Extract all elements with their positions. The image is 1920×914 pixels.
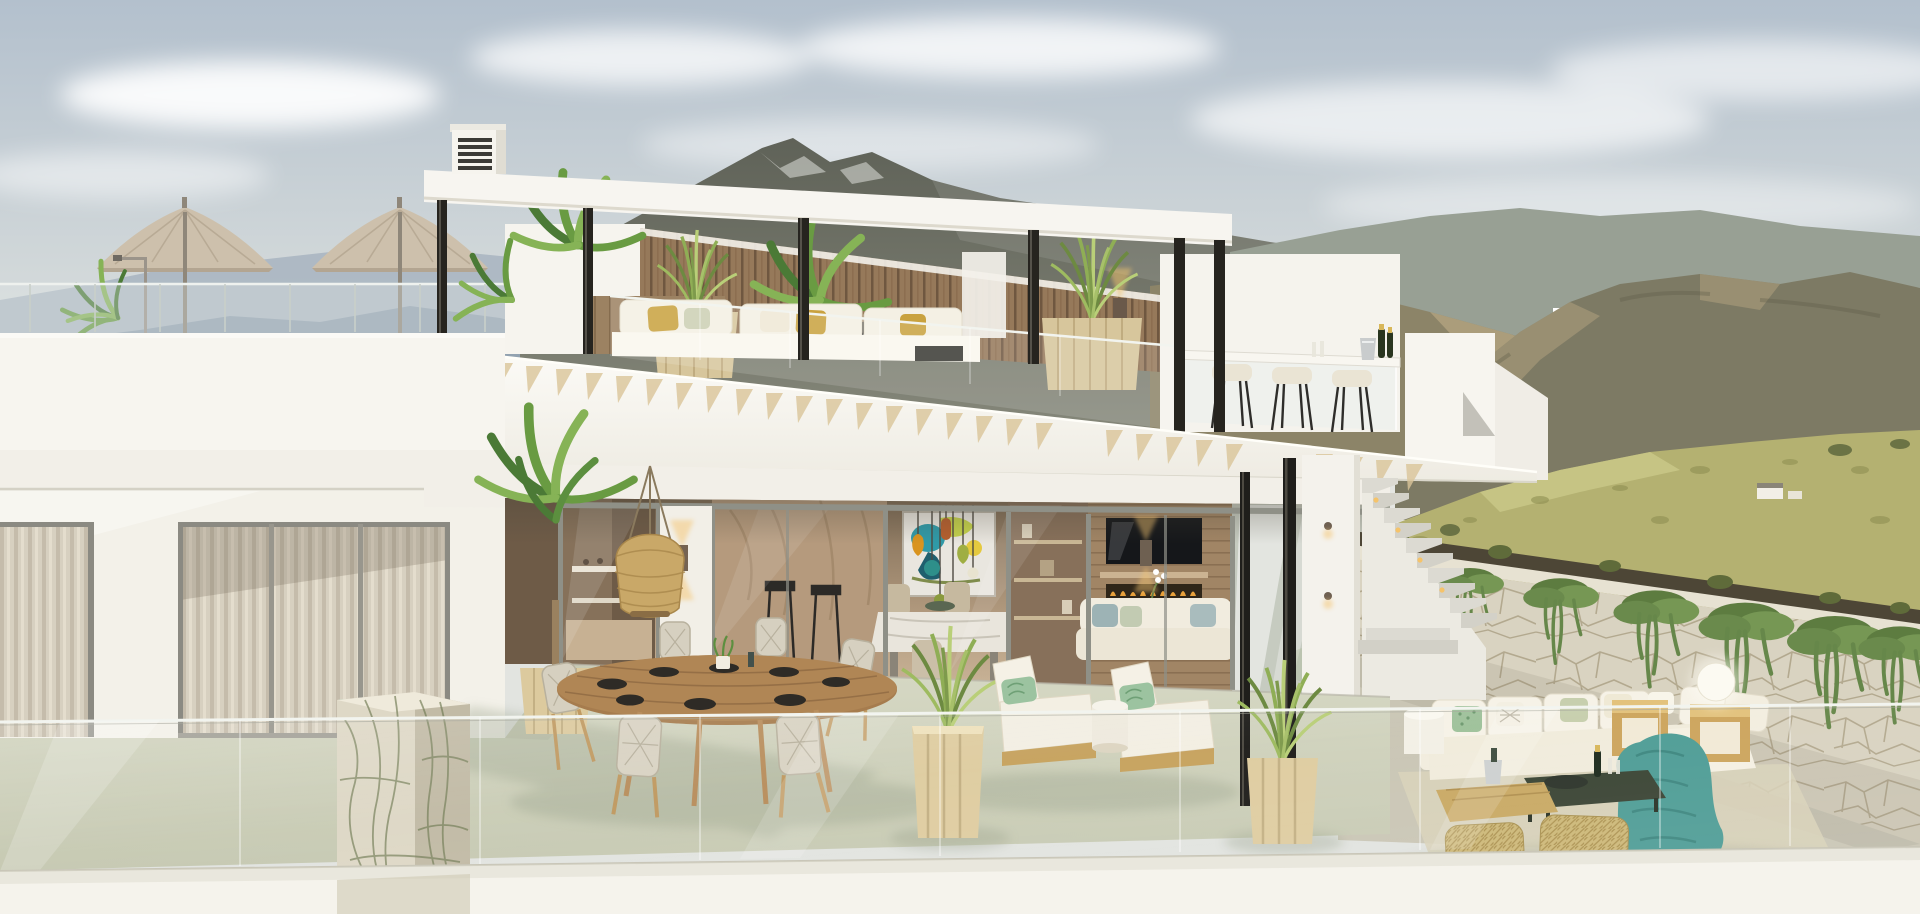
window-left-partial [0, 522, 94, 737]
globe-lamp [1690, 656, 1742, 708]
dining-chair [660, 622, 690, 660]
chimney-vent [450, 124, 506, 174]
pillar-base [337, 874, 470, 914]
dining-chair [756, 618, 786, 656]
villa-rendering [0, 0, 1920, 914]
left-wing [0, 333, 505, 740]
green-pillow [1000, 676, 1037, 705]
roof-glass-railing [0, 283, 505, 333]
stair-bulkhead [1405, 333, 1495, 479]
glass-balustrade [0, 704, 1920, 872]
